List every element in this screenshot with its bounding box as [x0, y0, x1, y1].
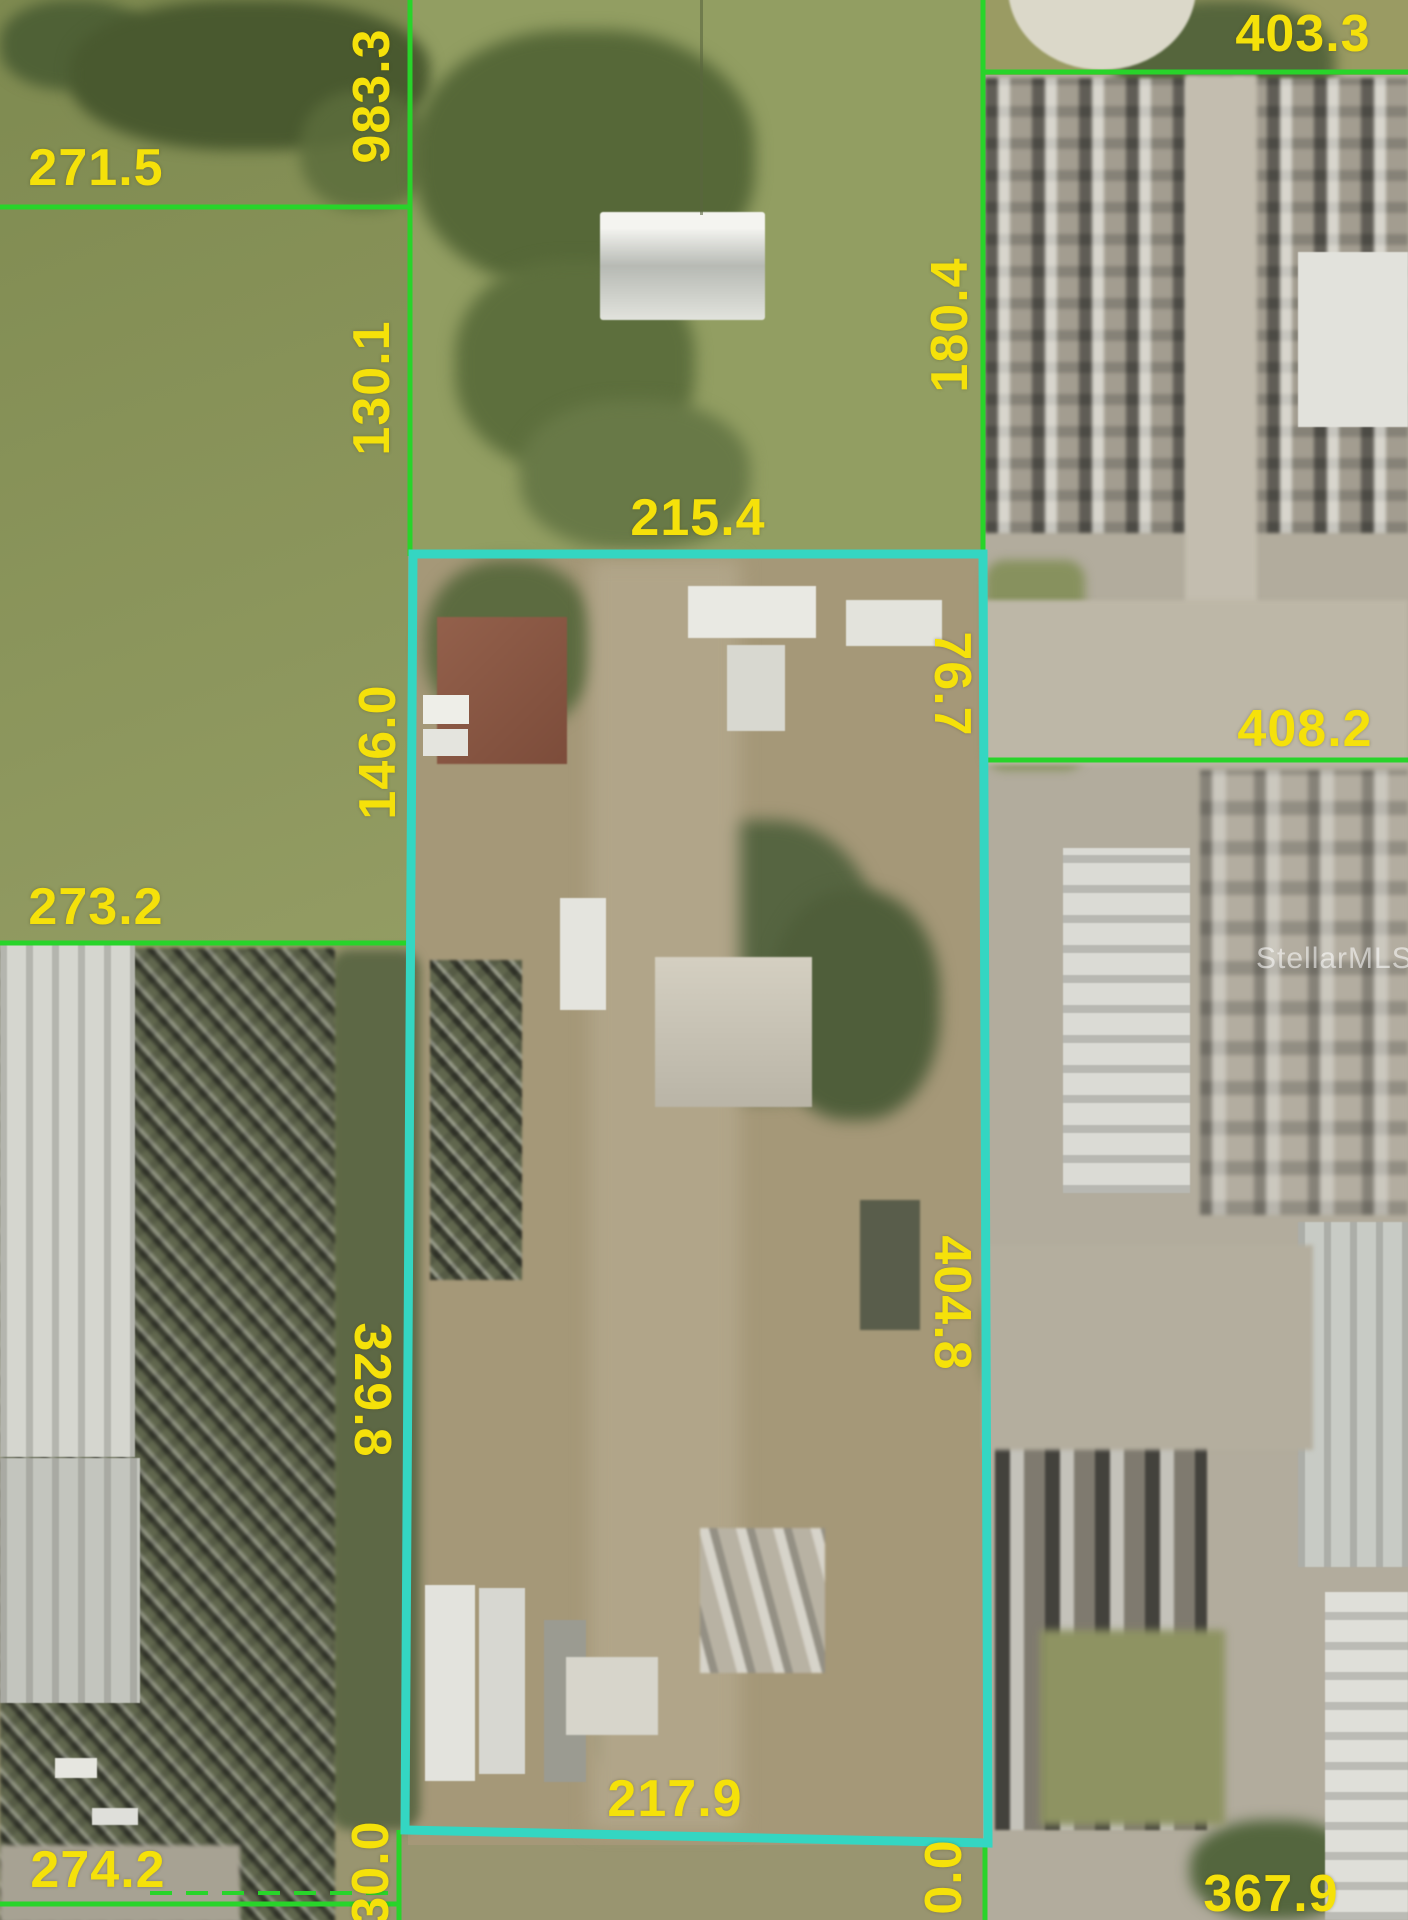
subject-parcel-boundary [405, 554, 988, 1843]
measurement-parcel-right-lower: 404.8 [926, 1235, 978, 1370]
stellar-mls-watermark: StellarMLS [1256, 942, 1408, 976]
measurement-right-boundary-upper: 180.4 [924, 257, 976, 392]
aerial-parcel-map: 271.5 983.3 130.1 215.4 180.4 403.3 146.… [0, 0, 1408, 1920]
measurement-mid-left-width: 273.2 [28, 881, 163, 933]
measurement-parcel-left-upper: 146.0 [352, 684, 404, 819]
measurement-left-boundary-lower: 130.1 [346, 320, 398, 455]
measurement-mid-right-width: 408.2 [1237, 703, 1372, 755]
measurement-parcel-left-lower: 329.8 [346, 1322, 398, 1457]
measurement-bottom-right-stub: 0.0 [918, 1839, 970, 1914]
boundary-overlay [0, 0, 1408, 1920]
measurement-parcel-right-upper: 76.7 [926, 631, 978, 736]
measurement-top-left-width: 271.5 [28, 142, 163, 194]
measurement-left-boundary-upper: 983.3 [346, 28, 398, 163]
measurement-parcel-top: 215.4 [630, 492, 765, 544]
measurement-bottom-left-stub: 30.0 [345, 1820, 397, 1920]
measurement-parcel-bottom: 217.9 [607, 1773, 742, 1825]
measurement-top-right-width: 403.3 [1235, 8, 1370, 60]
measurement-bottom-right-width: 367.9 [1203, 1868, 1338, 1920]
measurement-bottom-left-width: 274.2 [30, 1844, 165, 1896]
